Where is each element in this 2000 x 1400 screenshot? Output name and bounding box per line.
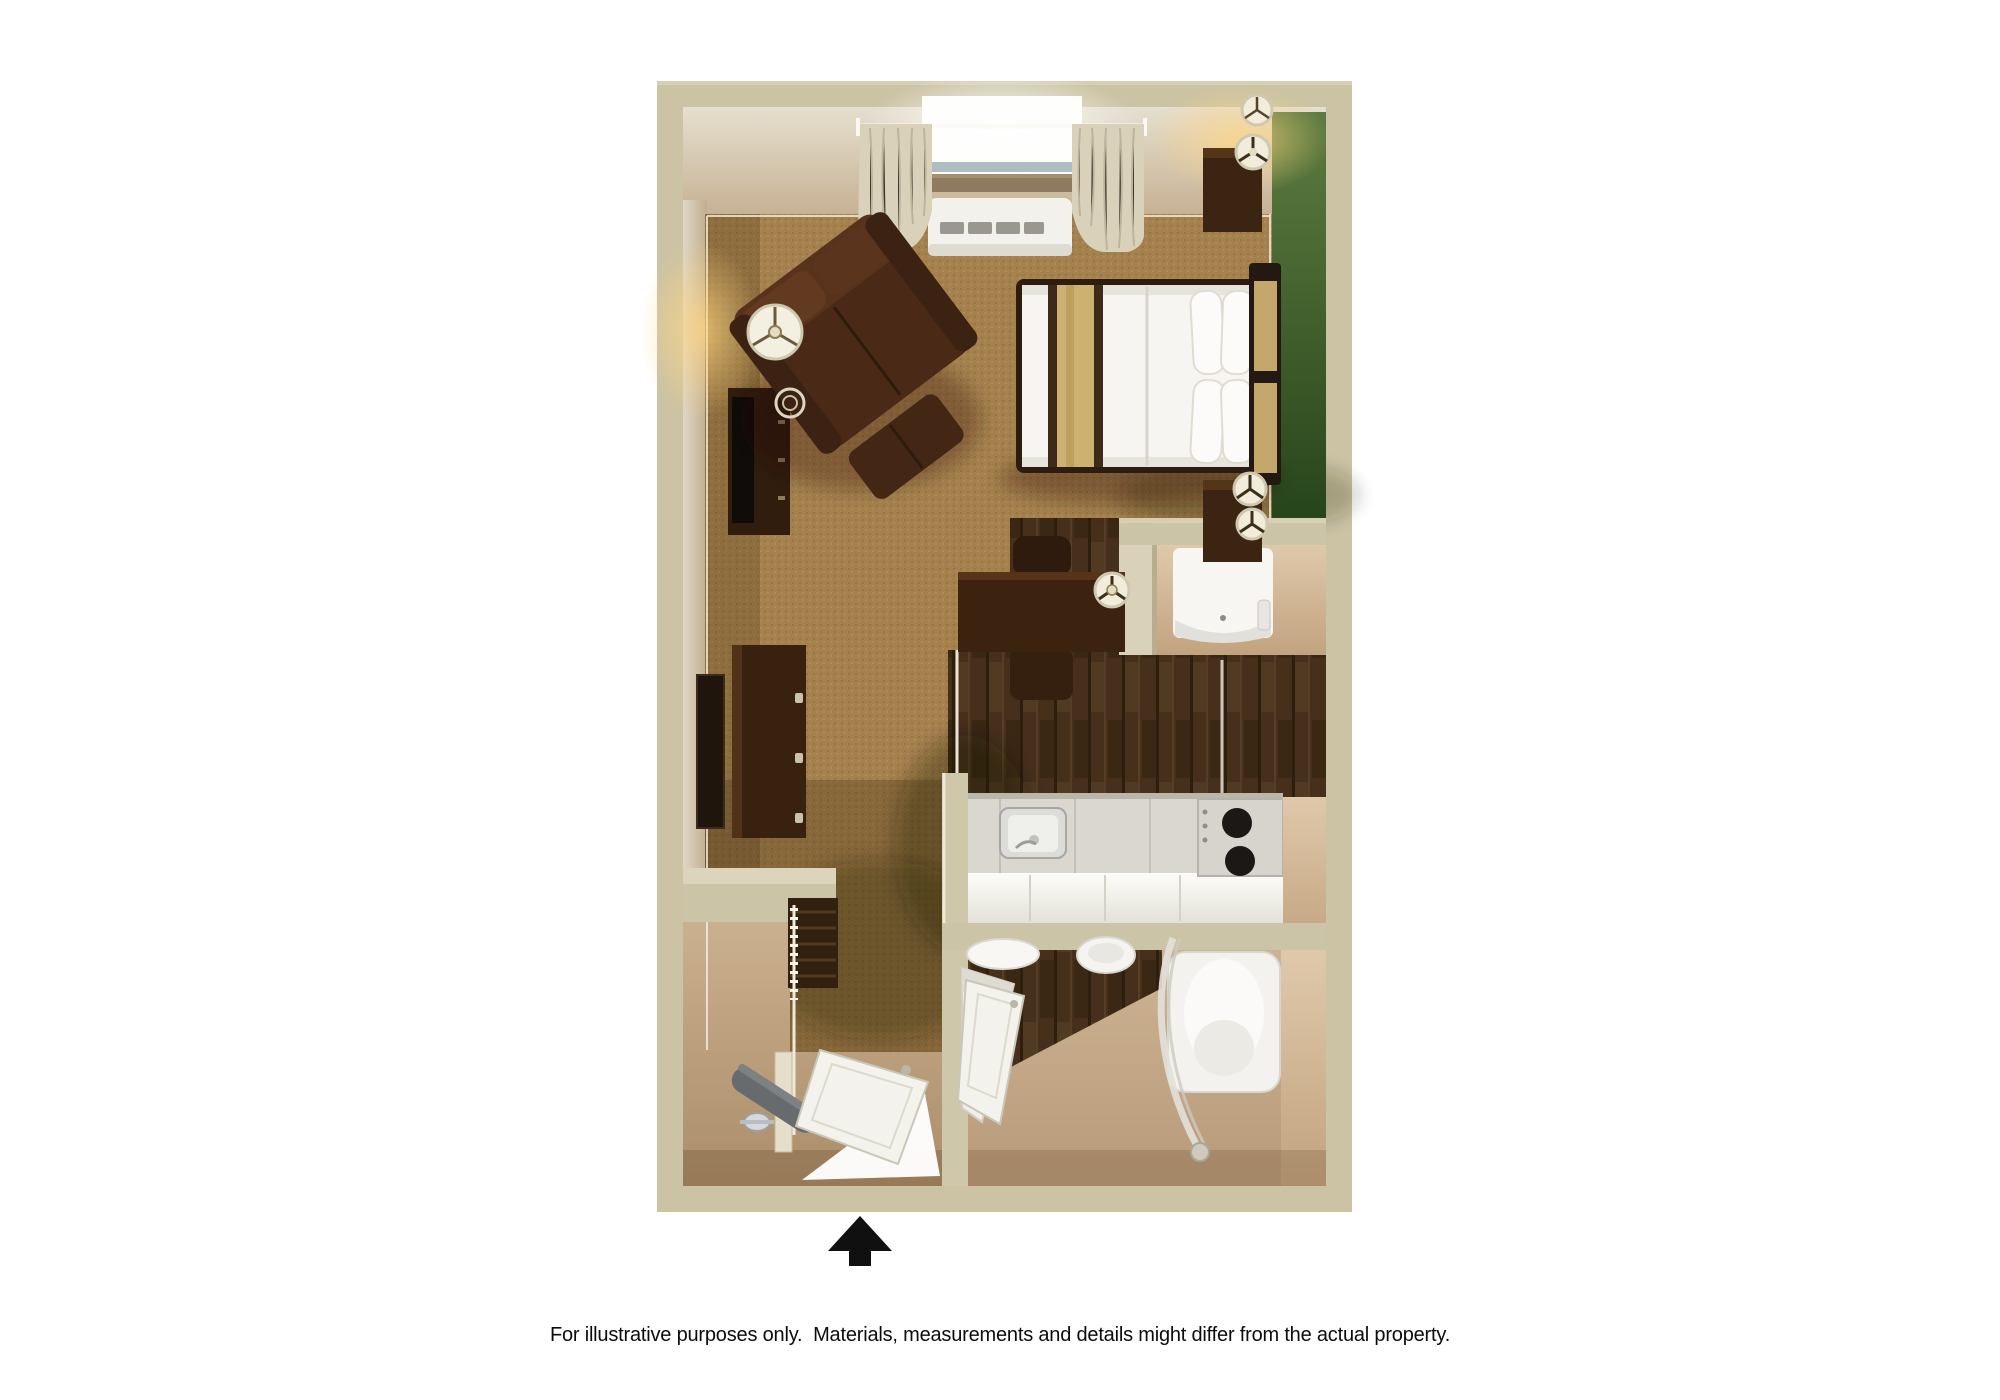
dresser	[732, 645, 806, 838]
toilet	[1077, 937, 1135, 973]
desk-lamp	[1095, 573, 1129, 607]
bed	[1016, 263, 1281, 485]
floor-lamp	[748, 305, 802, 359]
bed-runner-stripe	[1048, 285, 1057, 467]
disclaimer-text: For illustrative purposes only. Material…	[0, 1324, 2000, 1347]
bathroom-bottom-wall-face	[968, 1150, 1326, 1186]
headboard	[1249, 263, 1281, 485]
entrance-arrow-icon	[828, 1216, 892, 1266]
kitchen-sink	[1000, 808, 1066, 858]
bathtub	[1168, 952, 1280, 1092]
kitchen-left-wall	[942, 773, 968, 923]
floor-plan-page: For illustrative purposes only. Material…	[0, 0, 2000, 1400]
stove-two-burner	[1198, 799, 1283, 876]
bed-runner	[1057, 285, 1094, 467]
wall-mirror	[697, 675, 724, 828]
ptac-air-conditioner	[928, 198, 1072, 256]
floor-plan-figure	[0, 0, 2000, 1400]
